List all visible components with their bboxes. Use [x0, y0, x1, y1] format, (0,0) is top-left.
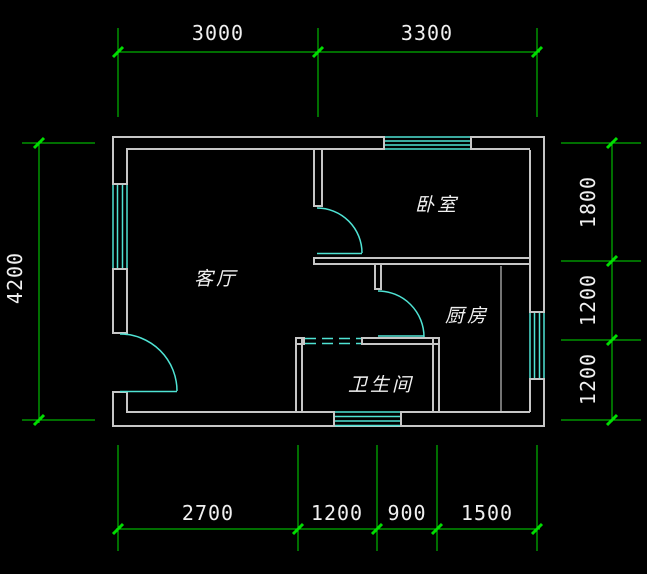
- left-wall-window: [113, 185, 127, 268]
- interior-walls: [295, 150, 530, 412]
- floor-plan-drawing: 3000 3300 4200 1800 1200 1200: [0, 0, 647, 574]
- dimension-value: 1200: [576, 274, 600, 326]
- room-labels: 客厅 卧室 厨房 卫生间: [194, 194, 489, 396]
- floor-plan-canvas: 3000 3300 4200 1800 1200 1200: [0, 0, 647, 574]
- room-label-bedroom: 卧室: [415, 194, 459, 216]
- dimension-value: 4200: [3, 252, 27, 304]
- dimension-value: 1200: [576, 353, 600, 405]
- room-label-living-room: 客厅: [194, 268, 238, 290]
- bottom-wall-window: [335, 412, 400, 426]
- door-arc: [378, 291, 424, 337]
- dimension-chain-right: 1800 1200 1200: [561, 138, 641, 425]
- dimension-value: 1800: [576, 176, 600, 228]
- dimension-value: 3300: [401, 21, 453, 45]
- right-wall-window: [530, 313, 544, 378]
- dimension-chain-left: 4200: [3, 138, 95, 425]
- room-label-bathroom: 卫生间: [348, 374, 414, 396]
- dimension-value: 900: [387, 501, 426, 525]
- door-arc: [120, 334, 177, 391]
- door-arc: [317, 208, 362, 253]
- bedroom-swing-door: [317, 208, 362, 254]
- dimension-value: 3000: [192, 21, 244, 45]
- top-wall-window: [385, 137, 470, 149]
- dimension-value: 2700: [182, 501, 234, 525]
- room-label-kitchen: 厨房: [445, 305, 489, 327]
- dimension-chain-bottom: 2700 1200 900 1500: [113, 445, 542, 551]
- kitchen-swing-door: [378, 291, 424, 337]
- dimension-value: 1500: [461, 501, 513, 525]
- dimension-value: 1200: [311, 501, 363, 525]
- dimension-chain-top: 3000 3300: [113, 21, 542, 117]
- entrance-swing-door: [120, 334, 177, 392]
- bathroom-sliding-door: [305, 339, 361, 344]
